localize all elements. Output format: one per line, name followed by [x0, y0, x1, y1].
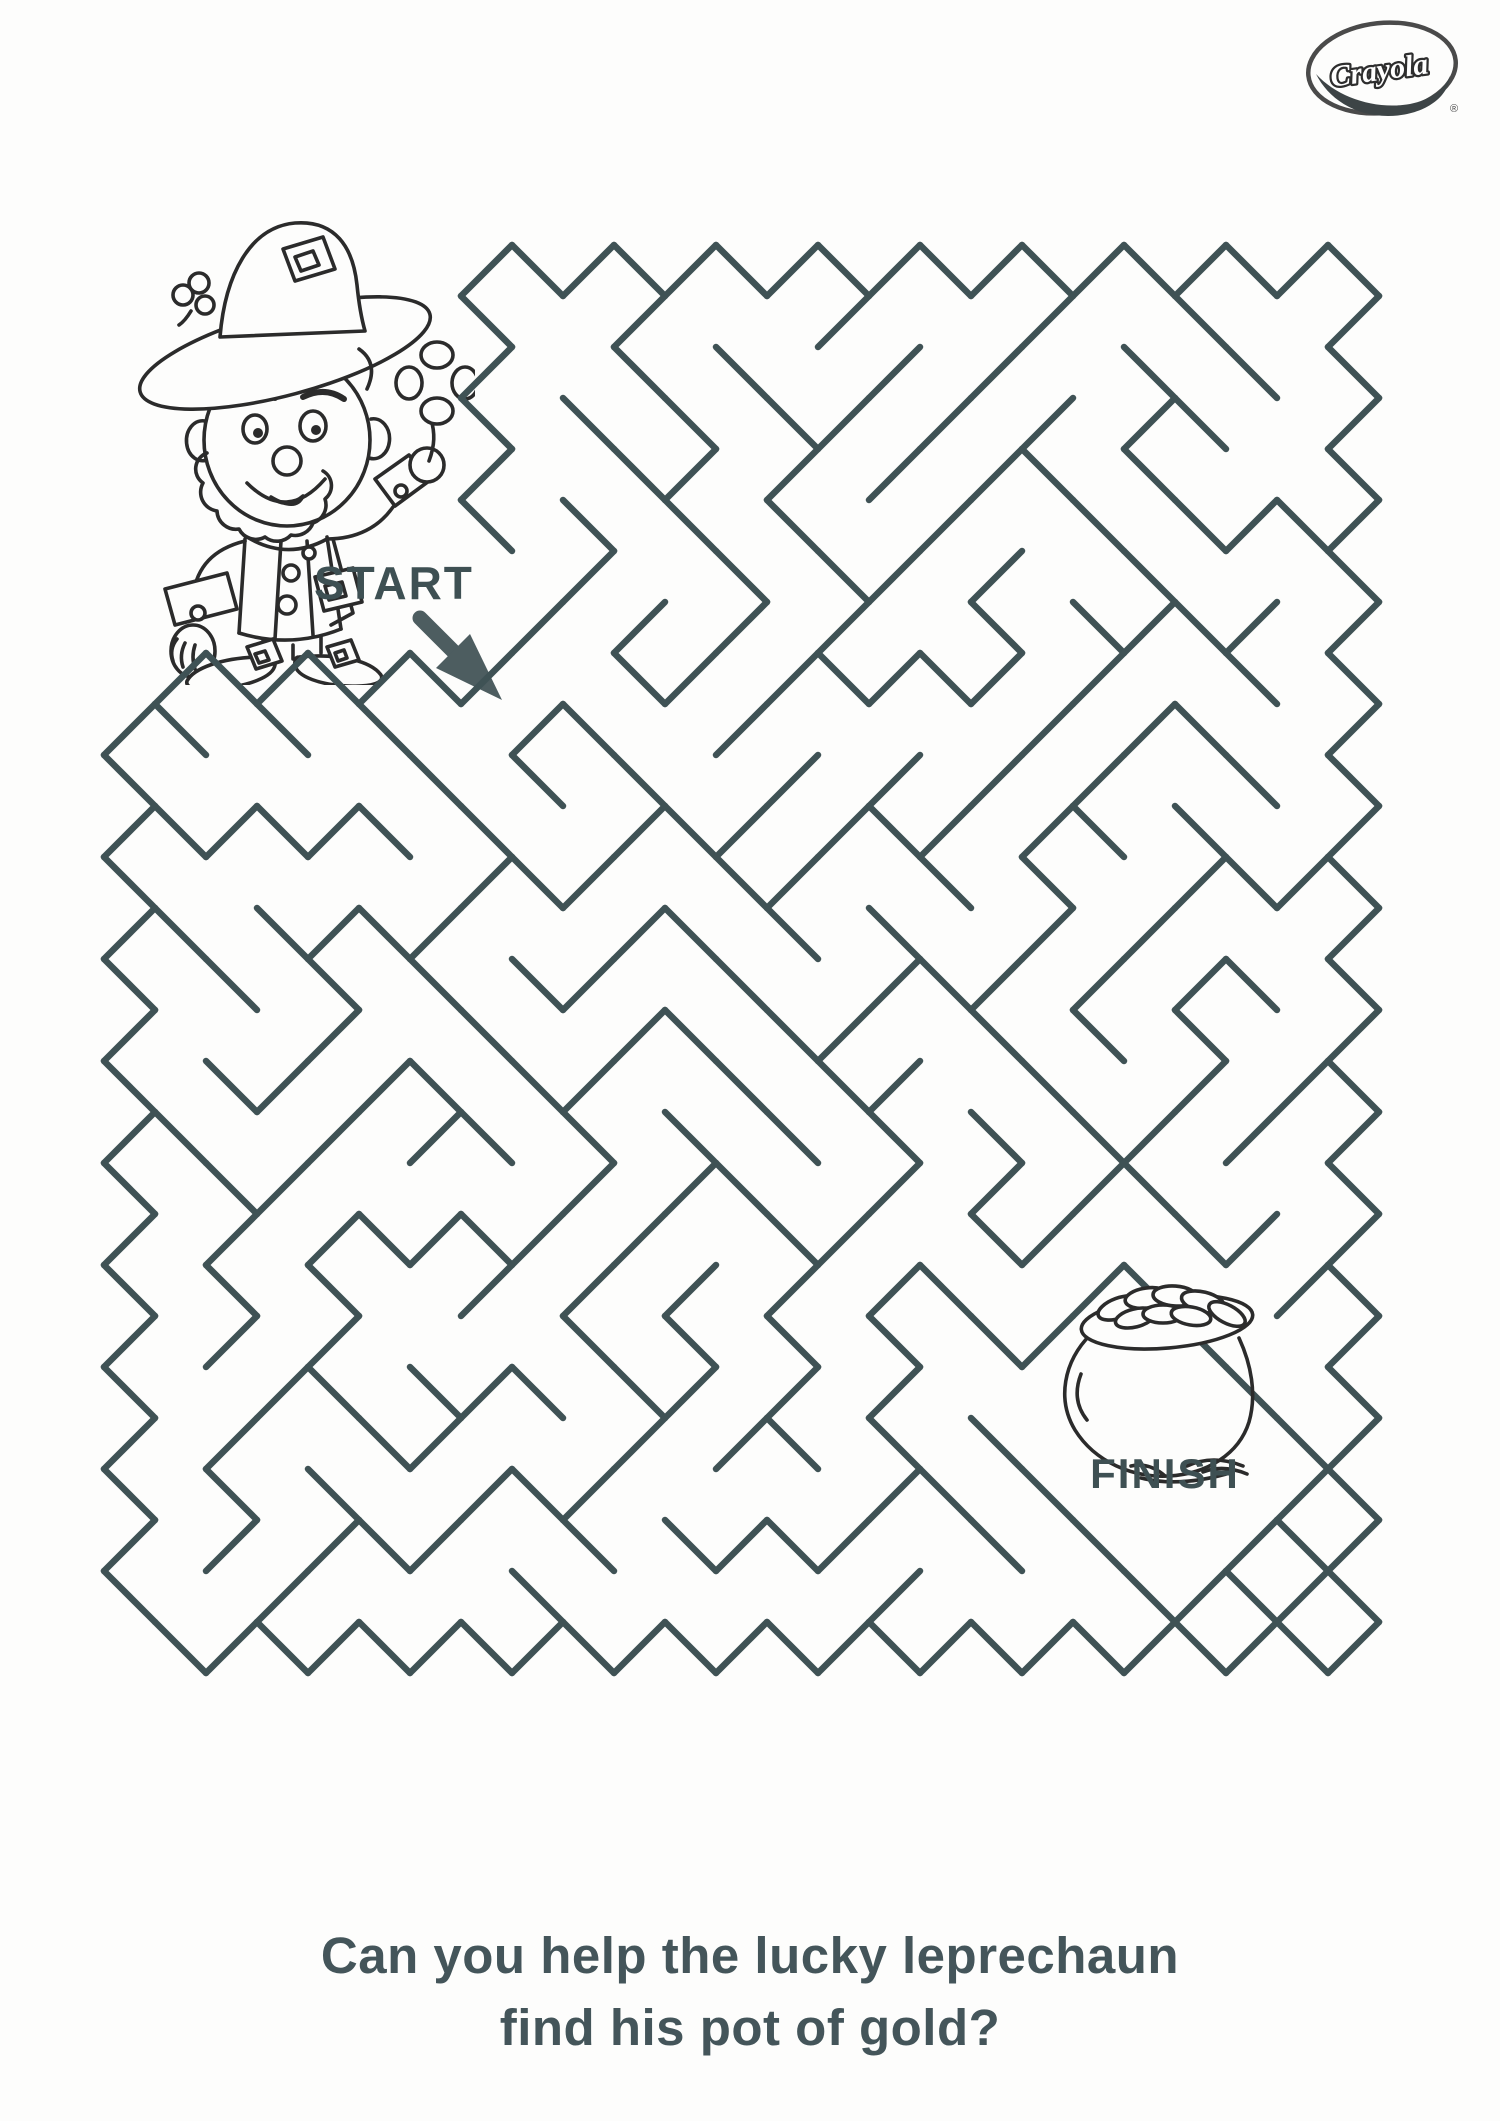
maze-wall — [869, 653, 920, 704]
maze-wall — [818, 1214, 869, 1265]
maze-wall — [308, 959, 359, 1010]
maze-wall — [920, 1622, 971, 1673]
maze-wall — [1073, 1163, 1124, 1214]
maze-wall — [1277, 1061, 1328, 1112]
maze-wall — [869, 551, 920, 602]
maze-wall — [920, 857, 971, 908]
maze-wall — [563, 1061, 614, 1112]
maze-wall — [512, 602, 563, 653]
maze-wall — [155, 806, 206, 857]
maze-wall — [1226, 1520, 1277, 1571]
maze-wall — [1073, 959, 1124, 1010]
maze-wall — [920, 806, 971, 857]
maze-wall — [308, 806, 359, 857]
maze-wall — [1328, 1571, 1379, 1622]
activity-page: Crayola ® — [0, 0, 1500, 2121]
maze-wall — [716, 704, 767, 755]
maze-wall — [1277, 1622, 1328, 1673]
maze-wall — [767, 857, 818, 908]
maze-wall — [1328, 602, 1379, 653]
maze-wall — [257, 1622, 308, 1673]
maze — [0, 0, 1500, 2121]
maze-wall — [1328, 857, 1379, 908]
maze-wall — [563, 1622, 614, 1673]
maze-wall — [410, 1061, 461, 1112]
maze-wall — [767, 449, 818, 500]
maze-wall — [665, 500, 716, 551]
maze-wall — [206, 1265, 257, 1316]
maze-wall — [206, 1622, 257, 1673]
maze-wall — [1328, 959, 1379, 1010]
maze-wall — [767, 1520, 818, 1571]
maze-wall — [206, 806, 257, 857]
maze-wall — [971, 551, 1022, 602]
maze-wall — [155, 1622, 206, 1673]
maze-wall — [563, 704, 614, 755]
maze-wall — [512, 1214, 563, 1265]
maze-wall — [563, 398, 614, 449]
maze-wall — [104, 1418, 155, 1469]
maze-wall — [665, 1265, 716, 1316]
maze-wall — [461, 245, 512, 296]
maze-wall — [359, 1418, 410, 1469]
maze-wall — [665, 1622, 716, 1673]
maze-wall — [104, 1010, 155, 1061]
maze-wall — [512, 755, 563, 806]
maze-wall — [563, 959, 614, 1010]
maze-wall — [1022, 245, 1073, 296]
maze-wall — [767, 1316, 818, 1367]
maze-wall — [1022, 449, 1073, 500]
maze-wall — [767, 1265, 818, 1316]
maze-wall — [665, 1316, 716, 1367]
maze-wall — [308, 1214, 359, 1265]
maze-wall — [512, 1061, 563, 1112]
maze-wall — [869, 1112, 920, 1163]
maze-wall — [1328, 1061, 1379, 1112]
maze-wall — [308, 1112, 359, 1163]
maze-wall — [818, 245, 869, 296]
maze-wall — [716, 347, 767, 398]
maze-wall — [1226, 1214, 1277, 1265]
maze-wall — [512, 1571, 563, 1622]
maze-wall — [104, 1214, 155, 1265]
maze-wall — [1328, 1163, 1379, 1214]
maze-wall — [818, 398, 869, 449]
maze-wall — [614, 653, 665, 704]
maze-wall — [665, 1367, 716, 1418]
maze-wall — [461, 398, 512, 449]
maze-wall — [461, 1214, 512, 1265]
maze-wall — [359, 1214, 410, 1265]
maze-wall — [1175, 296, 1226, 347]
maze-wall — [206, 1163, 257, 1214]
maze-wall — [410, 1112, 461, 1163]
maze-wall — [767, 500, 818, 551]
maze-wall — [1328, 347, 1379, 398]
maze-wall — [1328, 398, 1379, 449]
maze-wall — [308, 1316, 359, 1367]
maze-wall — [869, 1418, 920, 1469]
maze-wall — [512, 245, 563, 296]
maze-wall — [1328, 1418, 1379, 1469]
maze-wall — [563, 1265, 614, 1316]
maze-wall — [1277, 245, 1328, 296]
maze-wall — [1124, 551, 1175, 602]
maze-wall — [1022, 1061, 1073, 1112]
maze-wall — [1124, 398, 1175, 449]
maze-wall — [716, 551, 767, 602]
maze-wall — [104, 1061, 155, 1112]
maze-wall — [614, 1622, 665, 1673]
maze-wall — [1328, 1367, 1379, 1418]
maze-wall — [818, 602, 869, 653]
maze-wall — [767, 755, 818, 806]
maze-wall — [308, 1265, 359, 1316]
maze-wall — [1073, 1622, 1124, 1673]
maze-wall — [971, 1214, 1022, 1265]
maze-wall — [1073, 1010, 1124, 1061]
maze-wall — [1175, 806, 1226, 857]
maze-wall — [1022, 857, 1073, 908]
maze-wall — [1328, 245, 1379, 296]
maze-wall — [104, 1265, 155, 1316]
maze-wall — [461, 1265, 512, 1316]
maze-wall — [308, 1010, 359, 1061]
maze-wall — [1073, 602, 1124, 653]
maze-wall — [1226, 959, 1277, 1010]
maze-wall — [461, 449, 512, 500]
maze-wall — [869, 245, 920, 296]
maze-wall — [1226, 347, 1277, 398]
maze-wall — [818, 296, 869, 347]
maze-wall — [563, 500, 614, 551]
maze-wall — [1226, 1112, 1277, 1163]
maze-wall — [1175, 398, 1226, 449]
maze-wall — [104, 1316, 155, 1367]
maze-wall — [767, 1112, 818, 1163]
maze-wall — [1022, 704, 1073, 755]
maze-wall — [614, 245, 665, 296]
maze-wall — [359, 806, 410, 857]
maze-wall — [971, 1010, 1022, 1061]
maze-wall — [206, 1214, 257, 1265]
maze-wall — [308, 1622, 359, 1673]
maze-wall — [1175, 1214, 1226, 1265]
maze-wall — [410, 1418, 461, 1469]
maze-wall — [1328, 908, 1379, 959]
maze-wall — [104, 959, 155, 1010]
maze-wall — [1328, 1112, 1379, 1163]
maze-wall — [1022, 1214, 1073, 1265]
maze-wall — [563, 1112, 614, 1163]
maze-wall — [104, 1520, 155, 1571]
maze-wall — [359, 908, 410, 959]
maze-wall — [206, 1520, 257, 1571]
maze-wall — [257, 1061, 308, 1112]
maze-wall — [1328, 449, 1379, 500]
maze-wall — [257, 1163, 308, 1214]
maze-wall — [1328, 1520, 1379, 1571]
maze-wall — [512, 959, 563, 1010]
maze-wall — [1124, 1571, 1175, 1622]
maze-wall — [869, 1469, 920, 1520]
maze-wall — [155, 704, 206, 755]
maze-wall — [767, 398, 818, 449]
maze-wall — [1277, 857, 1328, 908]
maze-wall — [1328, 704, 1379, 755]
maze-wall — [920, 959, 971, 1010]
maze-wall — [818, 1010, 869, 1061]
maze-wall — [1175, 1061, 1226, 1112]
maze-wall — [461, 296, 512, 347]
maze-wall — [767, 1367, 818, 1418]
maze-wall — [461, 500, 512, 551]
maze-wall — [1226, 245, 1277, 296]
maze-wall — [971, 1112, 1022, 1163]
maze-wall — [767, 1010, 818, 1061]
maze-wall — [104, 1571, 155, 1622]
maze-wall — [1226, 857, 1277, 908]
maze-wall — [206, 959, 257, 1010]
maze-wall — [410, 1367, 461, 1418]
maze-wall — [155, 1112, 206, 1163]
maze-wall — [461, 1622, 512, 1673]
maze-wall — [1175, 1010, 1226, 1061]
maze-wall — [869, 959, 920, 1010]
maze-wall — [257, 704, 308, 755]
maze-wall — [308, 908, 359, 959]
maze-wall — [1328, 296, 1379, 347]
maze-wall — [1328, 1316, 1379, 1367]
maze-wall — [257, 1367, 308, 1418]
maze-wall — [665, 245, 716, 296]
maze-wall — [1124, 908, 1175, 959]
maze-wall — [1328, 1214, 1379, 1265]
maze-wall — [1226, 1622, 1277, 1673]
maze-wall — [1175, 245, 1226, 296]
maze-wall — [869, 1367, 920, 1418]
maze-wall — [1073, 755, 1124, 806]
maze-wall — [359, 653, 410, 704]
maze-wall — [1022, 296, 1073, 347]
maze-wall — [665, 449, 716, 500]
maze-wall — [971, 245, 1022, 296]
maze-wall — [104, 1367, 155, 1418]
maze-wall — [206, 653, 257, 704]
maze-wall — [665, 908, 716, 959]
maze-wall — [767, 908, 818, 959]
maze-wall — [1328, 500, 1379, 551]
maze-wall — [1022, 806, 1073, 857]
maze-wall — [1175, 704, 1226, 755]
maze-wall — [512, 704, 563, 755]
finish-label: FINISH — [1045, 1450, 1285, 1498]
maze-wall — [1226, 755, 1277, 806]
maze-wall — [1175, 1622, 1226, 1673]
maze-wall — [410, 1214, 461, 1265]
maze-wall — [716, 1061, 767, 1112]
maze-wall — [206, 1418, 257, 1469]
maze-wall — [869, 1061, 920, 1112]
maze-wall — [410, 755, 461, 806]
maze-wall — [869, 806, 920, 857]
maze-wall — [1073, 806, 1124, 857]
maze-wall — [410, 653, 461, 704]
maze-wall — [971, 959, 1022, 1010]
maze-wall — [104, 908, 155, 959]
caption: Can you help the lucky leprechaun find h… — [0, 1920, 1500, 2064]
maze-wall — [1226, 1571, 1277, 1622]
maze-wall — [716, 1520, 767, 1571]
maze-wall — [1328, 1265, 1379, 1316]
maze-wall — [1073, 1112, 1124, 1163]
maze-wall — [257, 1571, 308, 1622]
maze-wall — [665, 806, 716, 857]
maze-wall — [971, 347, 1022, 398]
maze-wall — [716, 857, 767, 908]
maze-wall — [665, 1112, 716, 1163]
maze-wall — [257, 653, 308, 704]
maze-wall — [818, 1061, 869, 1112]
maze-wall — [920, 500, 971, 551]
maze-wall — [1124, 704, 1175, 755]
maze-wall — [461, 1010, 512, 1061]
maze-wall — [104, 1469, 155, 1520]
maze-wall — [359, 1520, 410, 1571]
maze-wall — [665, 1010, 716, 1061]
maze-wall — [716, 1622, 767, 1673]
maze-wall — [869, 1571, 920, 1622]
maze-wall — [308, 1367, 359, 1418]
maze-wall — [869, 1265, 920, 1316]
maze-wall — [104, 755, 155, 806]
maze-wall — [818, 806, 869, 857]
maze-wall — [614, 1214, 665, 1265]
maze-wall — [155, 653, 206, 704]
maze-wall — [869, 755, 920, 806]
maze-wall — [1277, 1520, 1328, 1571]
maze-wall — [461, 1367, 512, 1418]
maze-wall — [716, 1418, 767, 1469]
maze-wall — [1226, 602, 1277, 653]
maze-wall — [716, 806, 767, 857]
maze-wall — [1328, 653, 1379, 704]
maze-wall — [971, 653, 1022, 704]
maze-wall — [563, 245, 614, 296]
maze-wall — [512, 857, 563, 908]
pot-shine — [1077, 1374, 1087, 1420]
maze-wall — [971, 1163, 1022, 1214]
maze-wall — [563, 1316, 614, 1367]
maze-wall — [869, 1622, 920, 1673]
maze-wall — [461, 1112, 512, 1163]
maze-wall — [461, 857, 512, 908]
maze-wall — [767, 1622, 818, 1673]
maze-wall — [563, 857, 614, 908]
maze-wall — [971, 755, 1022, 806]
maze-wall — [1124, 1112, 1175, 1163]
maze-wall — [1175, 1571, 1226, 1622]
maze-wall — [563, 1469, 614, 1520]
maze-wall — [869, 1316, 920, 1367]
caption-line-2: find his pot of gold? — [0, 1992, 1500, 2064]
maze-wall — [716, 602, 767, 653]
maze-wall — [971, 449, 1022, 500]
maze-wall — [104, 806, 155, 857]
maze-wall — [665, 653, 716, 704]
maze-wall — [1073, 500, 1124, 551]
maze-wall — [920, 1469, 971, 1520]
maze-wall — [818, 1622, 869, 1673]
maze-wall — [512, 1622, 563, 1673]
maze-wall — [665, 398, 716, 449]
maze-wall — [563, 1163, 614, 1214]
maze-wall — [1175, 500, 1226, 551]
maze-wall — [563, 1520, 614, 1571]
maze-wall — [206, 1061, 257, 1112]
maze-wall — [1124, 449, 1175, 500]
maze-wall — [614, 1367, 665, 1418]
maze-wall — [665, 1520, 716, 1571]
maze-wall — [971, 1520, 1022, 1571]
maze-wall — [104, 1163, 155, 1214]
maze-wall — [461, 1469, 512, 1520]
maze-wall — [359, 704, 410, 755]
maze-wall — [1277, 500, 1328, 551]
maze-wall — [359, 1622, 410, 1673]
maze-wall — [1328, 551, 1379, 602]
maze-wall — [1328, 1469, 1379, 1520]
maze-wall — [614, 806, 665, 857]
maze-wall — [1022, 908, 1073, 959]
maze-wall — [614, 347, 665, 398]
maze-wall — [155, 908, 206, 959]
maze-wall — [767, 245, 818, 296]
maze-wall — [512, 1367, 563, 1418]
maze-wall — [512, 1469, 563, 1520]
maze-wall — [410, 959, 461, 1010]
maze-wall — [1124, 602, 1175, 653]
maze-wall — [1175, 959, 1226, 1010]
maze-wall — [563, 551, 614, 602]
maze-wall — [767, 653, 818, 704]
maze-wall — [257, 908, 308, 959]
maze-wall — [1124, 245, 1175, 296]
maze-wall — [614, 908, 665, 959]
maze-wall — [308, 653, 359, 704]
maze-wall — [1328, 1622, 1379, 1673]
maze-wall — [614, 755, 665, 806]
maze-wall — [1175, 857, 1226, 908]
maze-wall — [920, 653, 971, 704]
maze-wall — [614, 449, 665, 500]
maze-wall — [461, 806, 512, 857]
maze-wall — [1124, 347, 1175, 398]
maze-wall — [1328, 1010, 1379, 1061]
maze-wall — [206, 1316, 257, 1367]
maze-wall — [104, 1112, 155, 1163]
maze-wall — [1124, 1163, 1175, 1214]
maze-wall — [206, 1469, 257, 1520]
maze-wall — [461, 347, 512, 398]
maze-wall — [1124, 1622, 1175, 1673]
maze-wall — [1073, 1520, 1124, 1571]
maze-wall — [971, 1316, 1022, 1367]
maze-wall — [818, 551, 869, 602]
maze-wall — [308, 1520, 359, 1571]
maze-wall — [869, 449, 920, 500]
